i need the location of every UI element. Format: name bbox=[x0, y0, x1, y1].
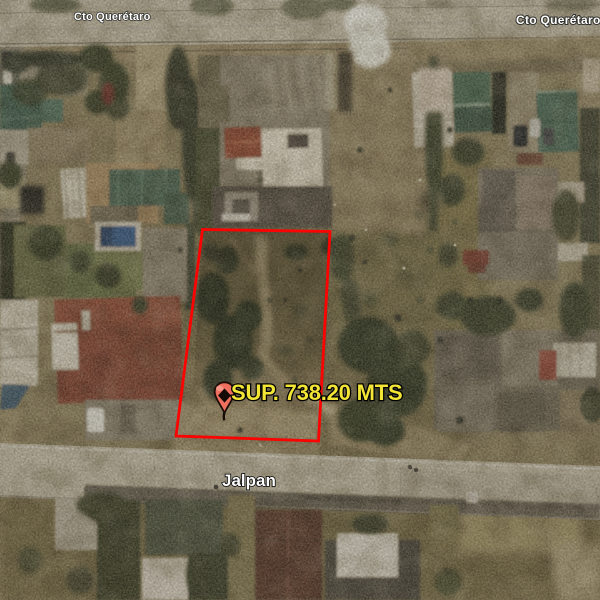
svg-text:Jalpan: Jalpan bbox=[222, 471, 276, 490]
svg-text:Cto Querétaro: Cto Querétaro bbox=[516, 13, 600, 27]
svg-text:Cto Querétaro: Cto Querétaro bbox=[74, 11, 151, 23]
svg-text:SUP. 738.20 MTS: SUP. 738.20 MTS bbox=[231, 380, 402, 405]
